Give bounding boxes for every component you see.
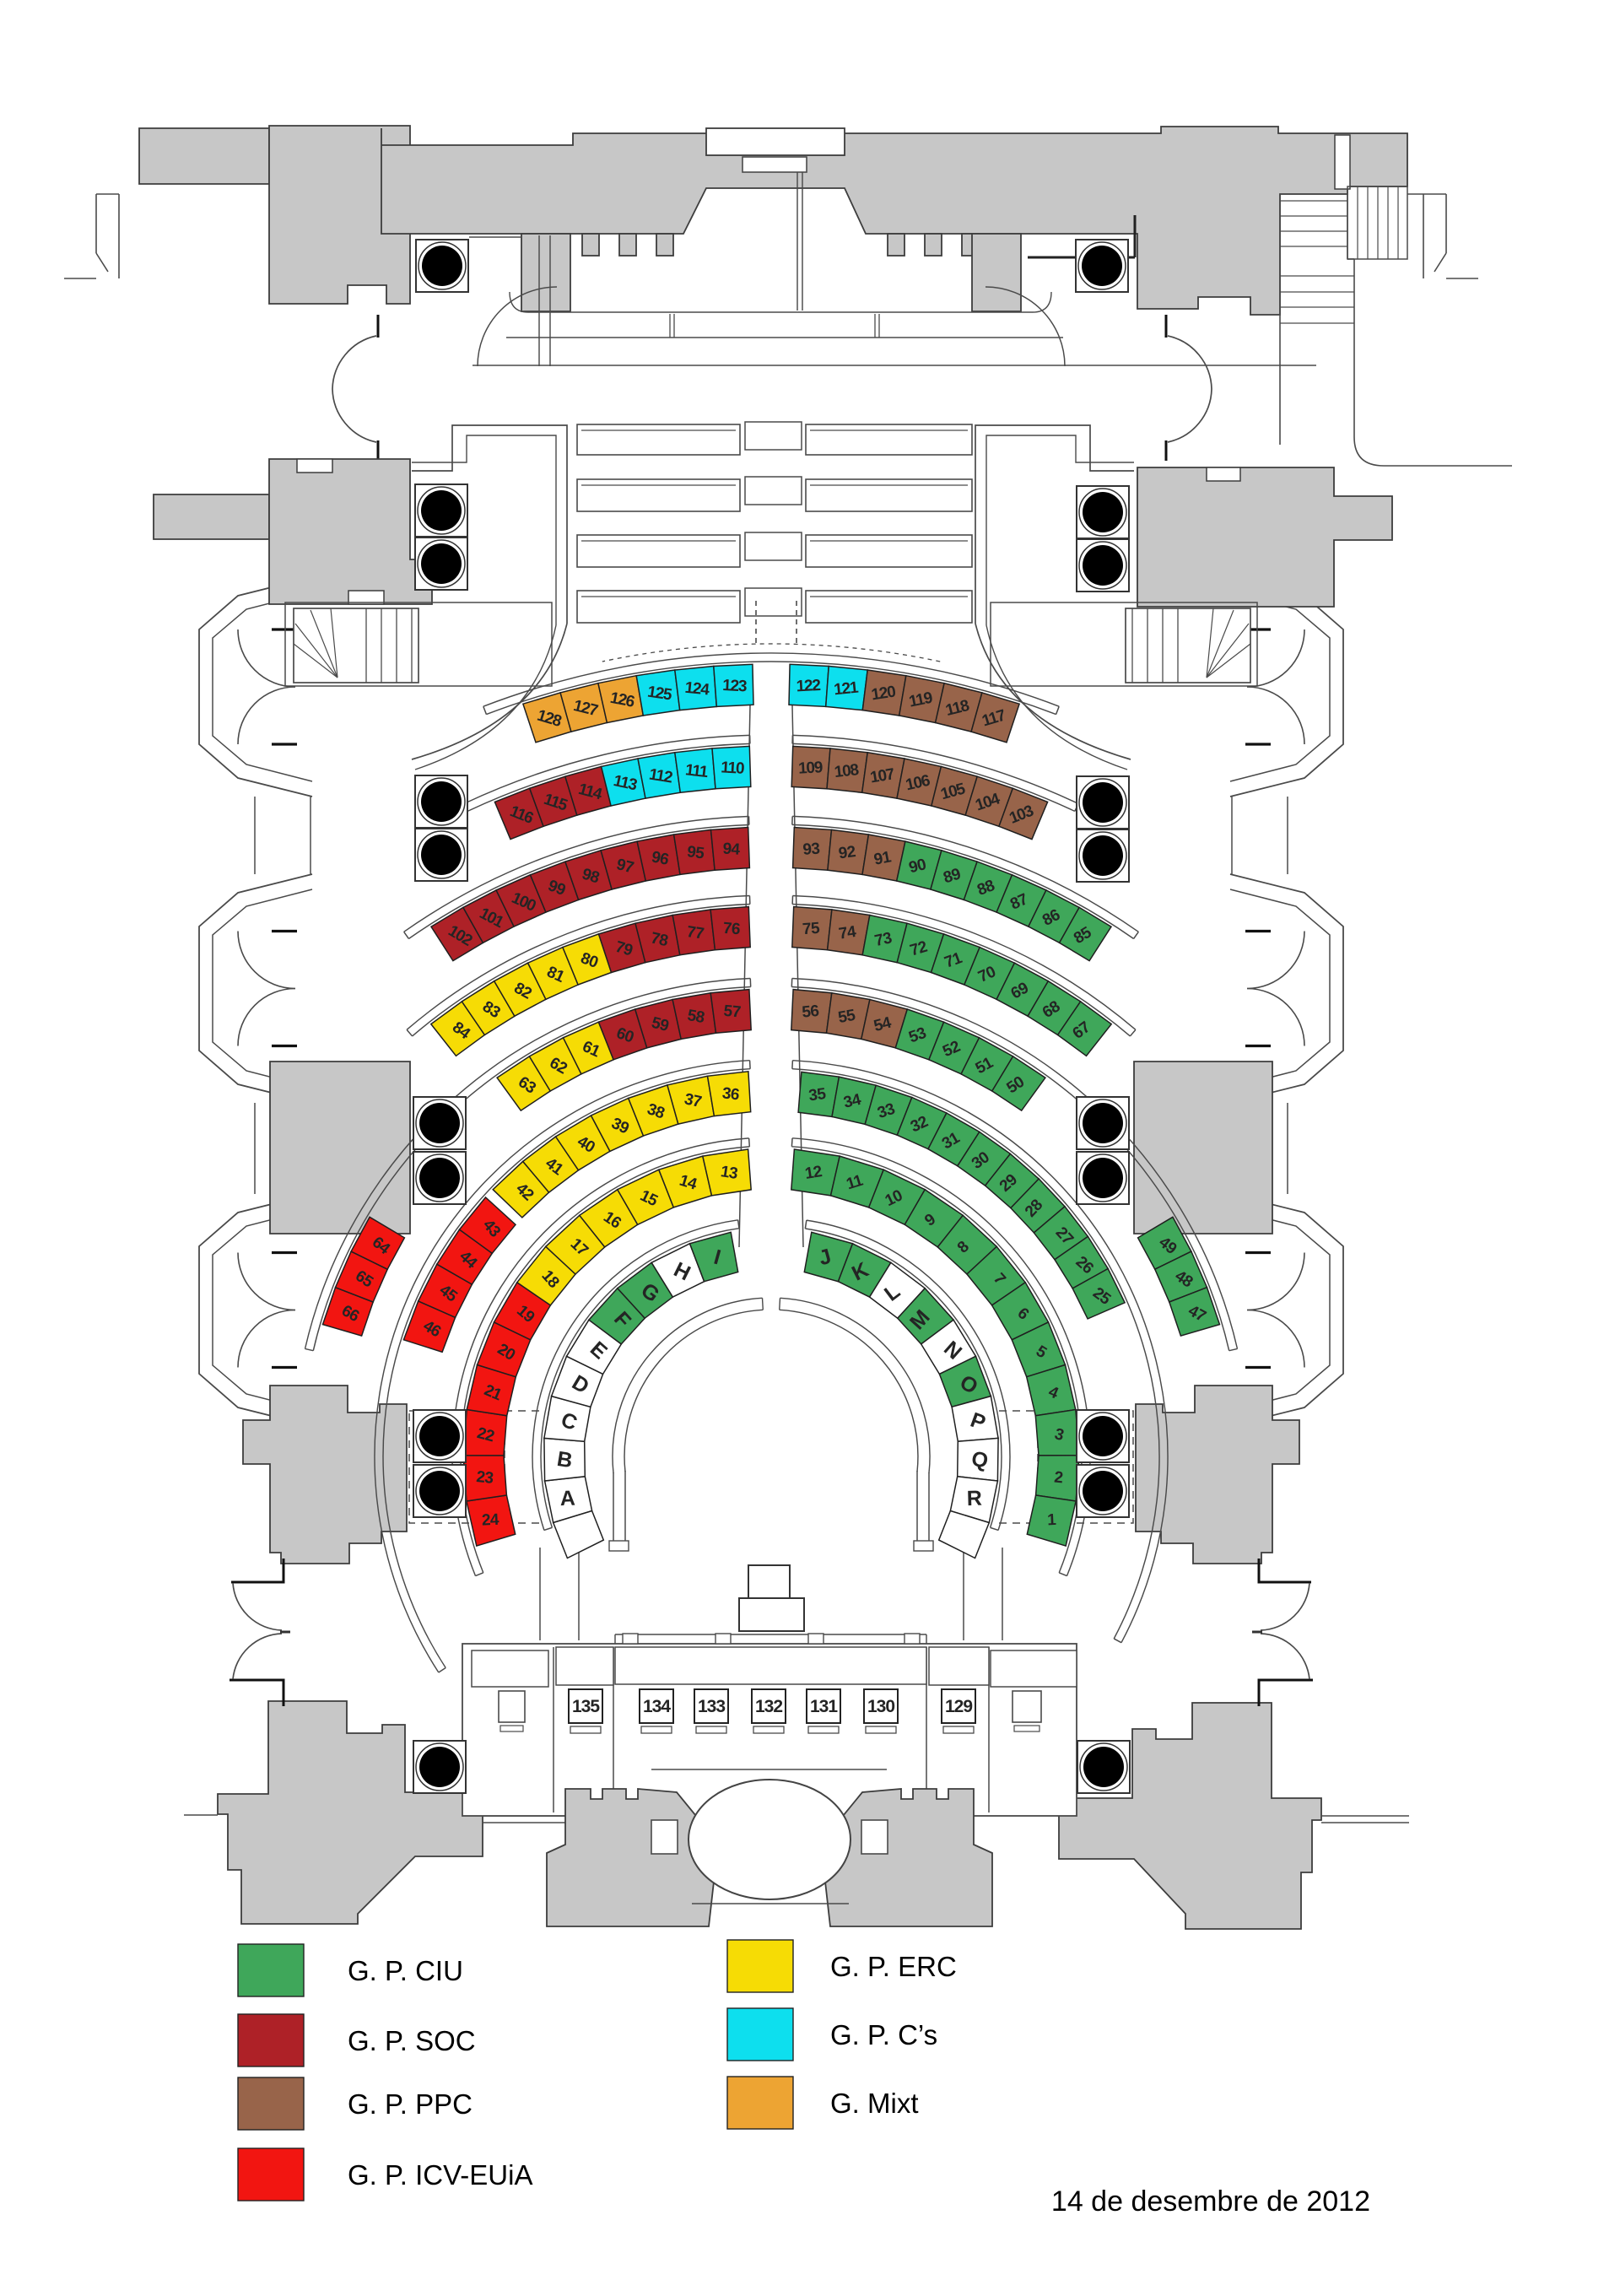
svg-text:122: 122: [796, 677, 821, 695]
svg-text:121: 121: [833, 679, 860, 700]
svg-text:74: 74: [838, 923, 858, 943]
svg-text:24: 24: [482, 1511, 500, 1530]
svg-text:36: 36: [721, 1084, 740, 1104]
svg-text:132: 132: [755, 1697, 782, 1716]
svg-text:75: 75: [802, 920, 820, 939]
svg-text:120: 120: [870, 683, 896, 704]
svg-text:2: 2: [1053, 1468, 1064, 1487]
svg-text:35: 35: [807, 1085, 827, 1105]
svg-text:14 de desembre de 2012: 14 de desembre de 2012: [1051, 2185, 1370, 2218]
svg-text:R: R: [966, 1487, 982, 1510]
svg-text:57: 57: [723, 1002, 742, 1022]
svg-text:G. P. PPC: G. P. PPC: [348, 2088, 472, 2120]
svg-text:13: 13: [720, 1163, 739, 1183]
svg-text:93: 93: [802, 840, 820, 859]
svg-text:110: 110: [721, 759, 745, 778]
svg-text:96: 96: [650, 848, 669, 868]
svg-text:92: 92: [838, 843, 856, 862]
svg-text:G. P. CIU: G. P. CIU: [348, 1955, 463, 1986]
svg-text:58: 58: [686, 1007, 705, 1027]
svg-text:134: 134: [643, 1697, 671, 1716]
svg-text:111: 111: [684, 761, 710, 781]
svg-text:76: 76: [722, 920, 740, 938]
svg-text:77: 77: [686, 923, 705, 943]
svg-text:23: 23: [475, 1468, 494, 1488]
svg-text:131: 131: [810, 1697, 838, 1716]
svg-text:56: 56: [802, 1002, 820, 1022]
svg-text:12: 12: [804, 1163, 823, 1183]
svg-text:A: A: [559, 1487, 575, 1510]
svg-text:112: 112: [648, 765, 674, 786]
svg-text:133: 133: [698, 1697, 725, 1716]
svg-text:G. P. C’s: G. P. C’s: [830, 2019, 937, 2050]
svg-text:125: 125: [646, 683, 673, 705]
svg-text:109: 109: [798, 759, 823, 778]
svg-text:130: 130: [867, 1697, 894, 1716]
svg-text:123: 123: [722, 677, 748, 695]
svg-text:129: 129: [945, 1697, 972, 1716]
svg-text:135: 135: [572, 1697, 600, 1716]
svg-text:G. P. ERC: G. P. ERC: [830, 1951, 957, 1982]
svg-text:G. P. SOC: G. P. SOC: [348, 2025, 476, 2056]
svg-text:1: 1: [1047, 1511, 1057, 1529]
svg-text:95: 95: [686, 843, 705, 862]
svg-text:108: 108: [834, 761, 860, 781]
svg-text:G. Mixt: G. Mixt: [830, 2088, 919, 2119]
svg-text:124: 124: [684, 679, 711, 700]
svg-text:G. P. ICV-EUiA: G. P. ICV-EUiA: [348, 2159, 532, 2191]
svg-text:94: 94: [722, 840, 741, 859]
